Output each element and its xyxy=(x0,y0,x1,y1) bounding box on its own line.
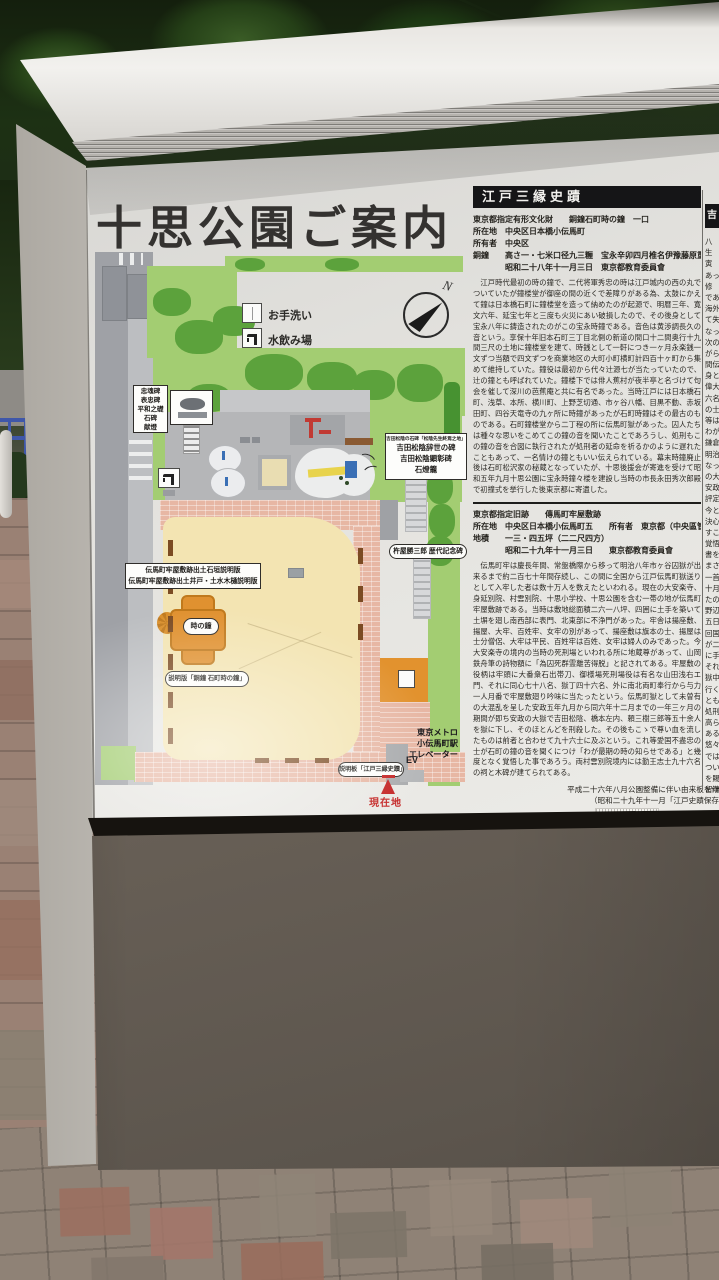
toilet-legend-label: お手洗い xyxy=(268,307,312,323)
fountain-legend-label: 水飲み場 xyxy=(268,332,312,348)
map-tree-clump xyxy=(235,258,265,271)
section1-meta: 所在地 中央区日本橋小伝馬町所有者 中央区銅鐘 高さ一・七米口径九三糎 宝永辛卯… xyxy=(473,226,719,274)
map-sprinkler xyxy=(222,451,225,460)
map-monument-label: 忠魂碑表忠碑平和之礎石碑献燈 xyxy=(133,385,168,433)
pavement-tile xyxy=(520,1198,593,1250)
list-item: の士 xyxy=(705,404,719,415)
list-item: 高らか xyxy=(705,717,719,728)
list-item: 十月廿 xyxy=(705,583,719,594)
map-dash xyxy=(168,540,173,556)
list-item: なっ xyxy=(705,326,719,337)
list-item: 獄中の xyxy=(705,672,719,683)
list-item: であ xyxy=(705,292,719,303)
map-fountain-base xyxy=(163,490,175,496)
photo-scene: 十思公園ご案内 xyxy=(0,0,719,1280)
list-item: 五日 xyxy=(705,616,719,627)
map-sprinkler xyxy=(225,477,228,486)
list-item: 所在地 中央区日本橋小伝馬町五 所有者 東京都（中央區管理） xyxy=(473,521,701,533)
pavement-tile xyxy=(241,1241,324,1280)
list-item: 安政六 xyxy=(705,482,719,493)
pavement-tile xyxy=(429,1179,493,1237)
list-item: 身と xyxy=(705,370,719,381)
list-item: 覚悟し xyxy=(705,538,719,549)
list-item: たのが xyxy=(705,594,719,605)
map-figure-dot xyxy=(339,476,343,480)
list-item: 一首で xyxy=(705,572,719,583)
column2-text-fragments: 八生寅あっ修であ海外て失なっ次のがら間伝身と偉大六名の士等はわが国鎌倉幕明治維な… xyxy=(705,236,719,795)
list-item: 間伝 xyxy=(705,359,719,370)
list-item: が二十 xyxy=(705,639,719,650)
pavement-tile xyxy=(481,1243,554,1280)
list-item: を賜任 xyxy=(705,773,719,784)
yoshida-line-1: 吉田松陰の石碑「松陰先生終焉之地」 xyxy=(386,435,466,442)
list-item: 行くべ xyxy=(705,684,719,695)
list-item: 平和之礎 xyxy=(134,405,167,414)
list-item: 鎌倉幕 xyxy=(705,437,719,448)
faucet-icon xyxy=(171,474,174,485)
list-item: 処刑の xyxy=(705,706,719,717)
history-panel: 江戸三縁史蹟 東京都指定有形文化財 銅鐘石町時の鐘 一口 所在地 中央区日本橋小… xyxy=(473,186,719,818)
board-sheen xyxy=(84,560,504,830)
yoshida-line-4: 石燈籠 xyxy=(386,464,466,475)
list-item: では「 xyxy=(705,751,719,762)
section2-meta: 所在地 中央区日本橋小伝馬町五 所有者 東京都（中央區管理）地積 一三・四五坪（… xyxy=(473,521,719,557)
list-item: あっ xyxy=(705,270,719,281)
faucet-icon xyxy=(163,478,165,482)
list-item: 決心を xyxy=(705,516,719,527)
list-item: ある。 xyxy=(705,728,719,739)
list-item: 昭和二十九年十一月三日 東京都教育委員會 xyxy=(473,545,701,557)
list-item: 所在地 中央区日本橋小伝馬町 xyxy=(473,226,701,238)
map-crosswalk xyxy=(129,440,152,488)
monument-icon xyxy=(180,398,205,410)
compass-north-label: N xyxy=(441,277,454,295)
map-crosswalk xyxy=(119,253,143,265)
map-building xyxy=(127,274,149,319)
list-item: なったこ xyxy=(705,460,719,471)
yoshida-line-2: 吉田松陰辞世の碑 xyxy=(386,442,466,453)
divider xyxy=(252,307,253,320)
list-item: 六名 xyxy=(705,393,719,404)
monument-label-lines: 忠魂碑表忠碑平和之礎石碑献燈 xyxy=(134,387,167,432)
pavement-tile xyxy=(150,1206,213,1260)
list-item: 悠々た xyxy=(705,739,719,750)
list-item: 石碑 xyxy=(134,414,167,423)
monument-base xyxy=(178,412,207,418)
list-item: 表忠碑 xyxy=(134,396,167,405)
map-tree-clump xyxy=(245,354,303,392)
map-wall xyxy=(345,438,373,445)
list-item: 野辺に xyxy=(705,605,719,616)
list-item: がら xyxy=(705,348,719,359)
background-bollard xyxy=(0,430,12,518)
list-item: に手渡 xyxy=(705,650,719,661)
list-item: 修 xyxy=(705,281,719,292)
list-item: 昭和二十八年十一月三日 東京都教育委員會 xyxy=(473,262,701,274)
list-item: 生 xyxy=(705,247,719,258)
map-bench xyxy=(252,437,260,443)
yoshida-line-3: 吉田松陰顕彰碑 xyxy=(386,453,466,464)
pavement-tile xyxy=(0,900,46,980)
list-item: 等は xyxy=(705,415,719,426)
panel-header: 江戸三縁史蹟 xyxy=(473,186,701,208)
map-play-equipment xyxy=(305,418,321,422)
list-item: ついた xyxy=(705,762,719,773)
map-structure xyxy=(380,500,398,540)
list-item: 八 xyxy=(705,236,719,247)
map-sandbox xyxy=(258,455,291,490)
map-fountain-icon xyxy=(158,468,180,488)
list-item: 次の xyxy=(705,337,719,348)
pavement-tile xyxy=(259,1174,317,1238)
pavement-tile xyxy=(59,1187,130,1237)
map-monument-figure xyxy=(170,390,213,425)
map-tree-clump xyxy=(429,504,455,538)
pavement-tile xyxy=(330,1211,407,1259)
list-item: 寅 xyxy=(705,258,719,269)
list-item: ともい xyxy=(705,695,719,706)
section-divider xyxy=(473,502,701,504)
panel-footnote-2: （昭和二十九年十一月「江戸史蹟保存 xyxy=(473,795,719,806)
section1-body: 江戸時代最初の時の鐘で、二代将軍秀忠の時は江戸城内の西の丸でついていたが鐘楼堂が… xyxy=(473,278,701,496)
panel-second-column: 吉 八生寅あっ修であ海外て失なっ次のがら間伝身と偉大六名の士等はわが国鎌倉幕明治… xyxy=(705,204,719,804)
list-item: 忠魂碑 xyxy=(134,387,167,396)
pavement-tile xyxy=(91,1256,164,1280)
map-play-equipment xyxy=(319,430,331,434)
list-item: 回国で xyxy=(705,628,719,639)
map-play-structure xyxy=(345,461,357,478)
list-item: 評定所 xyxy=(705,493,719,504)
column2-header: 吉 xyxy=(705,204,719,228)
pavement-tile xyxy=(609,1164,673,1228)
map-bench xyxy=(240,437,250,443)
map-yoshida-label: 吉田松陰の石碑「松陰先生終焉之地」 吉田松陰辞世の碑 吉田松陰顕彰碑 石燈籠 xyxy=(385,433,467,480)
list-item: て失 xyxy=(705,314,719,325)
list-item: 偉大 xyxy=(705,381,719,392)
map-walkway xyxy=(220,390,370,412)
list-item: それに xyxy=(705,661,719,672)
list-item: 海外 xyxy=(705,303,719,314)
map-tree-clump xyxy=(153,288,191,316)
map-play-equipment xyxy=(309,422,313,438)
fountain-legend-icon xyxy=(242,328,262,348)
faucet-icon xyxy=(247,338,249,342)
faucet-icon xyxy=(254,334,257,345)
map-figure-dot xyxy=(345,481,349,485)
list-item: わが国 xyxy=(705,426,719,437)
pavement-tile xyxy=(0,1030,50,1120)
list-item: 所有者 中央区 xyxy=(473,238,701,250)
panel-column-divider xyxy=(702,190,703,790)
map-building xyxy=(102,266,127,321)
list-item: 書を送 xyxy=(705,549,719,560)
section2-title: 東京都指定旧跡 傳馬町牢屋敷跡 xyxy=(473,509,701,521)
list-item: の大獄 xyxy=(705,471,719,482)
map-hedge xyxy=(444,382,460,440)
list-item: 明治維 xyxy=(705,449,719,460)
section1-title: 東京都指定有形文化財 銅鐘石町時の鐘 一口 xyxy=(473,214,701,226)
list-item: 献燈 xyxy=(134,423,167,432)
list-item: 銅鐘 高さ一・七米口径九三糎 宝永辛卯四月椎名伊豫藤原重体 xyxy=(473,250,701,262)
panel-footnote-1: 平成二十六年八月公園整備に伴い由来板を作 xyxy=(473,784,719,795)
list-item: 地積 一三・四五坪（二二尺四方） xyxy=(473,533,701,545)
list-item: 今とて xyxy=(705,505,719,516)
section2-body: 伝馬町牢は慶長年間、常盤橋際から移って明治八年市ヶ谷囚獄が出来るまで約二百七十年… xyxy=(473,561,701,779)
list-item: まさる xyxy=(705,560,719,571)
map-kineya-label: 杵屋勝三郎 歴代記念碑 xyxy=(389,544,467,559)
map-tree-clump xyxy=(397,364,443,402)
list-item: すこと xyxy=(705,527,719,538)
map-steps xyxy=(183,425,200,454)
map-tree-clump xyxy=(325,258,359,271)
list-item: 留魂碑 xyxy=(705,784,719,795)
toilet-legend-icon xyxy=(242,303,262,323)
map-sand-pond xyxy=(210,468,246,498)
